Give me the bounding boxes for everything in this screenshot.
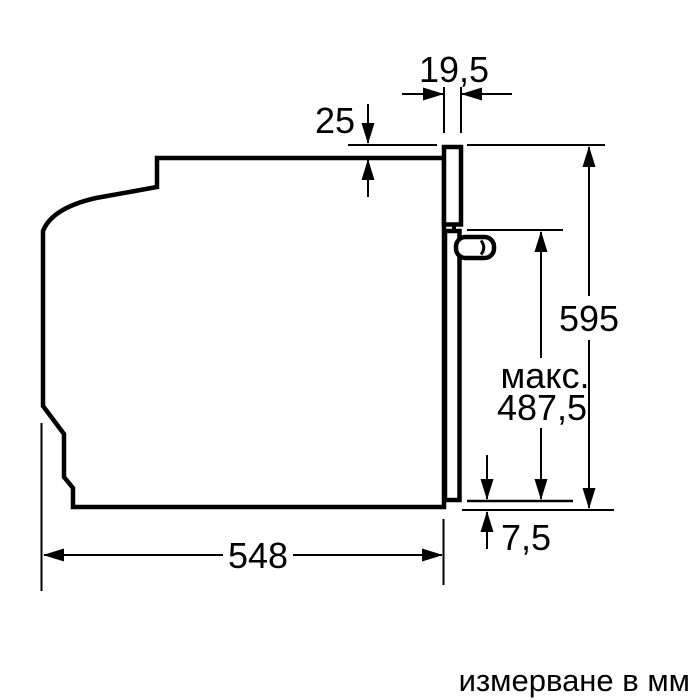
dim-max-height-value-label: 487,5 — [497, 387, 587, 428]
dim-frame-depth-label: 19,5 — [419, 49, 489, 90]
oven-body — [43, 147, 494, 507]
oven-dimension-diagram: 19,5 25 595 макс. 487,5 — [0, 0, 700, 700]
oven-body-outline — [43, 158, 444, 507]
dim-frame-depth: 19,5 — [402, 49, 512, 133]
diagram-canvas: 19,5 25 595 макс. 487,5 — [0, 0, 700, 700]
door-front — [445, 231, 460, 500]
dim-max-height: макс. 487,5 — [467, 230, 589, 501]
dim-total-height-label: 595 — [559, 298, 619, 339]
dim-body-depth-label: 548 — [228, 535, 288, 576]
dim-top-clearance-label: 25 — [315, 100, 355, 141]
control-panel-front — [444, 147, 461, 225]
dim-bottom-offset-label: 7,5 — [501, 517, 551, 558]
unit-note: измерване в мм — [459, 663, 690, 698]
door-handle — [456, 237, 494, 258]
